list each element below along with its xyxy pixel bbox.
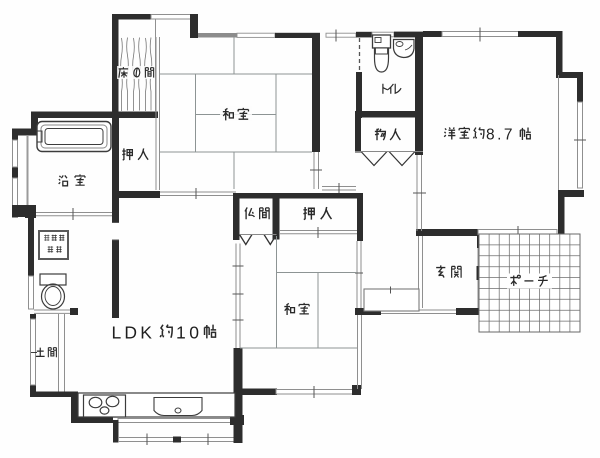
svg-text:8.7: 8.7 (486, 127, 515, 144)
svg-text:LDK: LDK (112, 323, 156, 343)
svg-text:10: 10 (176, 323, 202, 343)
